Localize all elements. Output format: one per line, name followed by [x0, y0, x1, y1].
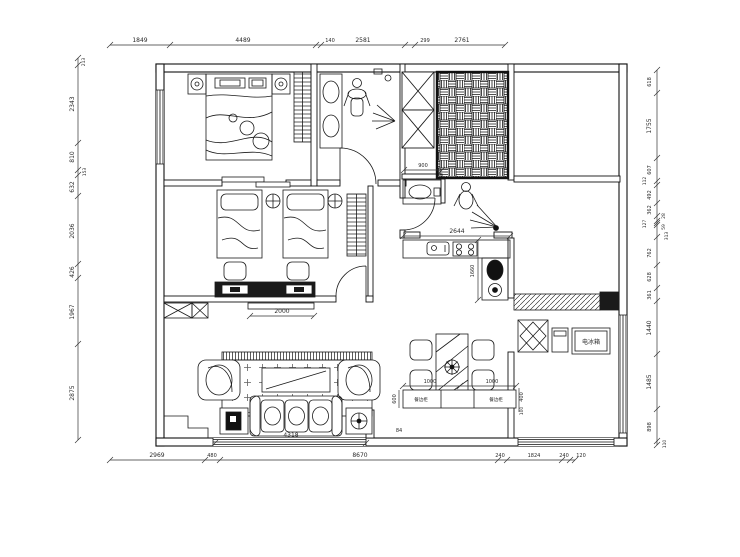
- sideboard-label-1: 餐边柜: [414, 396, 428, 403]
- entry-step: [164, 416, 208, 438]
- dim-right-13: 361: [647, 290, 653, 300]
- dining-chair-3: [472, 340, 494, 360]
- dim-balcony-a: 400: [519, 392, 525, 402]
- dim-right-11: 762: [647, 248, 653, 258]
- dim-left-4: 153: [82, 168, 88, 177]
- dim-bottom-6: 240: [559, 453, 569, 459]
- dim-living-window-label: 4318: [283, 432, 298, 439]
- dim-right-9: 59: [661, 224, 667, 230]
- dimension-labels-bottom: 2969 480 8670 240 1824 240 120: [149, 452, 585, 459]
- potted-plant: [518, 320, 548, 352]
- shower-spray-icon: [470, 205, 497, 228]
- floor-drain-icon: [494, 226, 499, 231]
- utility-cabinet: [552, 328, 568, 352]
- dim-left-3: 810: [69, 151, 76, 163]
- bathroom-top: [320, 69, 395, 184]
- dimension-labels-right: 618 1755 607 112 492 362 127 28 59 313 7…: [642, 77, 670, 448]
- dim-left-7: 426: [69, 266, 76, 278]
- dim-bottom-3: 8670: [352, 452, 367, 459]
- shower-spray-icon: [372, 105, 395, 129]
- window-balcony-bottom: [518, 438, 614, 446]
- living-room: [164, 303, 380, 446]
- dim-right-16: 898: [647, 422, 653, 432]
- gas-stove: [453, 242, 477, 256]
- dimension-chain-right: [654, 67, 660, 448]
- dim-left-6: 2036: [69, 223, 76, 238]
- tiled-shower-room: [437, 72, 508, 178]
- dim-bottom-1: 2969: [149, 452, 164, 459]
- master-bedroom: [188, 72, 311, 187]
- dim-right-2: 1755: [646, 118, 653, 133]
- side-table-right: [346, 408, 372, 434]
- door-bathroom-top: [340, 148, 376, 184]
- dim-right-7: 127: [642, 220, 648, 229]
- dim-bottom-7: 120: [576, 453, 586, 459]
- door-bathroom-small: [403, 198, 435, 230]
- dim-top-4: 2581: [355, 37, 370, 44]
- dim-right-4: 112: [642, 177, 648, 186]
- double-bed: [206, 74, 272, 160]
- dim-entry-label: 84: [396, 428, 402, 434]
- dim-basin-label: 900: [418, 163, 428, 169]
- dim-right-8: 28: [661, 213, 667, 219]
- dim-right-17: 110: [662, 440, 668, 449]
- sofa: [250, 396, 342, 436]
- dim-right-14: 1440: [646, 320, 653, 335]
- dim-right-15: 1485: [646, 374, 653, 389]
- dim-right-5: 492: [647, 190, 653, 200]
- dim-right-12: 628: [647, 272, 653, 282]
- window-balcony-right: [619, 315, 627, 433]
- dim-left-2: 2343: [69, 96, 76, 111]
- floor-plan-drawing: 1849 4489 140 2581 299 2761 213 2343 810…: [0, 0, 740, 557]
- dim-left-9: 2875: [69, 385, 76, 400]
- dimension-chain-bottom: [107, 457, 578, 463]
- fridge-label: 电冰箱: [582, 338, 600, 346]
- bedside-lamp-2: [328, 194, 342, 208]
- sliding-door-master: [222, 177, 290, 187]
- dim-left-5: 632: [69, 181, 76, 193]
- dim-right-6: 362: [647, 205, 653, 215]
- vanity-double-sink: [320, 74, 342, 148]
- door-bedroom2: [336, 266, 366, 296]
- shaft-columns: [402, 72, 434, 148]
- kitchen-side-counter: [482, 258, 508, 300]
- cabinet-x-2: [192, 303, 208, 318]
- person-figure: [344, 79, 370, 117]
- dim-left-1: 213: [81, 58, 87, 67]
- basin-dark: [487, 260, 503, 280]
- nightstand-left: [188, 74, 206, 94]
- dim-sideboard-right: 1000: [486, 379, 499, 385]
- desk: [215, 282, 315, 297]
- person-toilet-figure: [454, 183, 478, 210]
- kitchen: [400, 233, 513, 303]
- nightstand-right: [272, 74, 290, 94]
- dim-top-2: 4489: [235, 37, 250, 44]
- balcony: [514, 292, 619, 354]
- bedside-lamp-1: [266, 194, 280, 208]
- dimension-chain-left: [75, 55, 81, 443]
- dimension-labels-top: 1849 4489 140 2581 299 2761: [132, 37, 469, 44]
- window-master-left: [156, 90, 164, 164]
- dim-top-6: 2761: [454, 37, 469, 44]
- armchair-right: [338, 360, 380, 400]
- bedroom-2: [215, 190, 366, 297]
- dim-sideboard-depth: 600: [392, 394, 398, 404]
- dim-kitchen-counter-label: 2644: [449, 228, 464, 235]
- dim-right-10: 313: [664, 232, 670, 241]
- single-bed-2: [283, 190, 328, 258]
- single-bed-1: [217, 190, 262, 258]
- dim-tv-bench-label: 2000: [274, 308, 289, 315]
- column-block: [600, 292, 619, 310]
- desk-chair-2: [287, 262, 309, 280]
- dimension-chain-top: [107, 42, 508, 48]
- window-living-bottom: [213, 438, 366, 446]
- dim-top-3: 140: [325, 38, 335, 44]
- dimension-labels-left: 213 2343 810 153 632 2036 426 1967 2875: [69, 58, 88, 401]
- floor-plan-page: 1849 4489 140 2581 299 2761 213 2343 810…: [0, 0, 740, 557]
- desk-chair-1: [224, 262, 246, 280]
- armchair-left: [198, 360, 240, 400]
- dim-top-1: 1849: [132, 37, 147, 44]
- dining-chair-1: [410, 340, 432, 360]
- dim-kitchen-side-label: 1660: [470, 265, 476, 278]
- sideboard-label-2: 餐边柜: [489, 396, 503, 403]
- cabinet-x-1: [164, 303, 192, 318]
- dim-right-3: 607: [647, 165, 653, 175]
- coffee-table: [262, 368, 330, 392]
- dim-bottom-4: 240: [495, 453, 505, 459]
- dim-balcony-b: 100: [519, 407, 525, 416]
- insulated-wall: [514, 294, 600, 310]
- dim-bottom-2: 480: [207, 453, 217, 459]
- dim-sideboard-left: 1000: [424, 379, 437, 385]
- wardrobe-bedroom2: [347, 194, 366, 256]
- dim-right-1: 618: [647, 77, 653, 87]
- kitchen-counter: [403, 240, 510, 258]
- kitchen-sink: [427, 242, 449, 255]
- dim-bottom-5: 1824: [528, 453, 541, 459]
- dim-left-8: 1967: [69, 304, 76, 319]
- wardrobe-master: [294, 72, 311, 142]
- side-table-left: [220, 408, 248, 434]
- dim-top-5: 299: [420, 38, 430, 44]
- drain-icon: [385, 75, 391, 81]
